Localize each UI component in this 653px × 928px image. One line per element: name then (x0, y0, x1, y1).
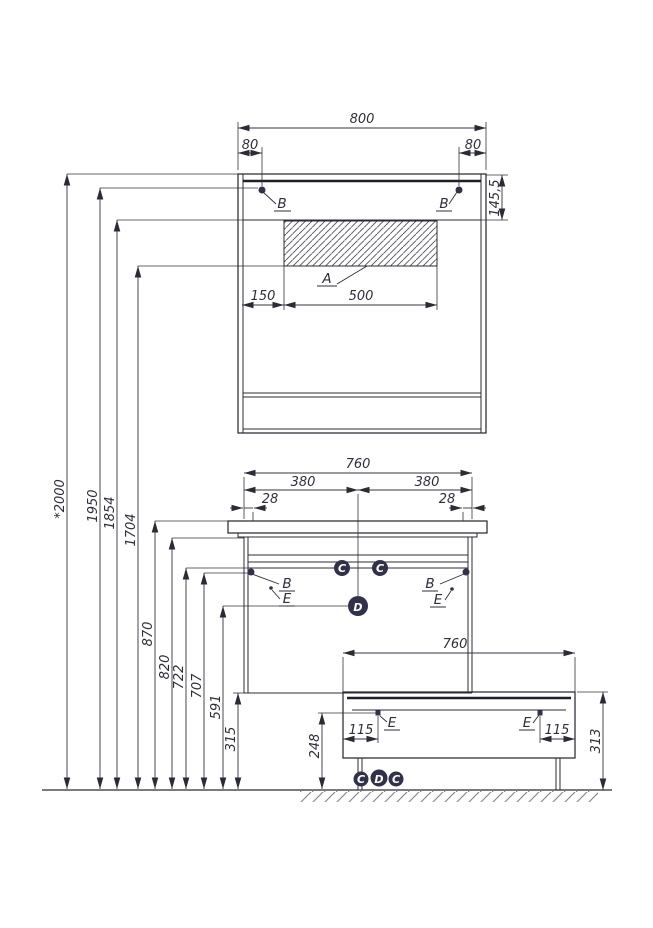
mounting-panel-a (284, 221, 437, 266)
dim-label-hook-offset-right: 115 (545, 723, 570, 738)
dim-height-cabinet-bottom: 315 (224, 693, 244, 789)
dim-label-side-mount-height: 707 (190, 673, 205, 699)
callout-b-vanity-left: B (282, 576, 291, 592)
callout-b-mirror-right: B (439, 196, 448, 212)
dim-label-mirror-width: 800 (350, 112, 375, 127)
callout-c-base-left: C (357, 773, 365, 786)
callout-e-vanity-right: E (434, 592, 443, 608)
base-hook-point-left (376, 711, 381, 716)
hook-point-e-left (269, 586, 273, 590)
dim-base-hook-right: 115 (540, 716, 575, 743)
dim-base-width: 760 (343, 637, 575, 692)
technical-drawing-page: *2000 1950 1854 1704 870 820 722 707 591 (0, 0, 653, 928)
dim-mirror-width: 800 (238, 112, 486, 170)
dim-label-mount-offset-left: 80 (242, 138, 259, 153)
dim-label-vanity-width: 760 (346, 457, 371, 472)
dim-height-countertop: 870 (141, 521, 228, 789)
base-hook-point-right (538, 711, 543, 716)
dim-base-hook-left: 115 (343, 716, 378, 743)
dim-label-top-section-height: 145,5 (488, 179, 503, 216)
dim-height-center-point: 591 (209, 606, 348, 789)
dim-label-countertop-bottom-height: 820 (158, 655, 173, 680)
dim-label-panel-bottom-height: 1704 (124, 513, 139, 546)
dim-label-base-hook-height: 248 (308, 734, 323, 759)
dim-panel-offsets: 150 500 (242, 266, 437, 310)
dim-label-overall-height: *2000 (53, 479, 68, 519)
dim-label-edge-right: 28 (439, 492, 456, 507)
callout-d-vanity: D (353, 601, 362, 614)
dim-label-base-height: 313 (589, 729, 604, 754)
dim-vanity-edge-right: 28 (439, 492, 486, 521)
dim-label-panel-top-height: 1854 (103, 496, 118, 529)
callout-e-base-left: E (388, 715, 397, 731)
callout-d-base: D (374, 773, 383, 786)
dim-label-center-left: 380 (291, 475, 316, 490)
callout-b-vanity-right: B (425, 576, 434, 592)
callout-a-panel: A (321, 271, 331, 287)
callout-b-mirror-left: B (277, 196, 286, 212)
callout-c-base-right: C (392, 773, 400, 786)
countertop (228, 521, 487, 533)
dim-label-cabinet-bottom-height: 315 (224, 727, 239, 752)
callout-c-vanity-left: C (338, 562, 346, 575)
dim-mirror-mount-offset-left: 80 (238, 138, 262, 186)
dim-label-mount-offset-right: 80 (465, 138, 482, 153)
dim-label-center-right: 380 (415, 475, 440, 490)
mount-point-b-left (259, 187, 266, 194)
dim-mirror-mount-offset-right: 80 (459, 138, 486, 186)
dim-height-rail: 722 (172, 568, 248, 789)
hook-point-e-right (450, 587, 454, 591)
installation-drawing: *2000 1950 1854 1704 870 820 722 707 591 (0, 0, 653, 928)
dim-vanity-edge-left: 28 (230, 492, 278, 521)
dim-label-panel-width: 500 (349, 289, 374, 304)
ground-hatch (300, 791, 598, 802)
ground (42, 790, 612, 802)
dim-vanity-centers: 380 380 (244, 475, 472, 490)
dim-label-edge-left: 28 (262, 492, 279, 507)
callout-e-base-right: E (523, 715, 532, 731)
dim-mirror-top-section: 145,5 (481, 175, 508, 220)
dim-label-base-width: 760 (443, 637, 468, 652)
dim-label-hook-offset-left: 115 (349, 723, 374, 738)
dim-label-mirror-mount-height: 1950 (86, 489, 101, 522)
vanity-cabinet: B B E E C C D (228, 494, 487, 693)
callout-c-vanity-right: C (376, 562, 384, 575)
dim-base-height: 313 (577, 692, 608, 790)
dim-label-panel-left-offset: 150 (251, 289, 276, 304)
dim-label-rail-height: 722 (172, 665, 187, 690)
dim-label-countertop-height: 870 (141, 622, 156, 647)
callout-e-vanity-left: E (283, 591, 292, 607)
dim-label-center-point-height: 591 (209, 695, 224, 720)
dim-height-side-mount: 707 (190, 573, 249, 789)
